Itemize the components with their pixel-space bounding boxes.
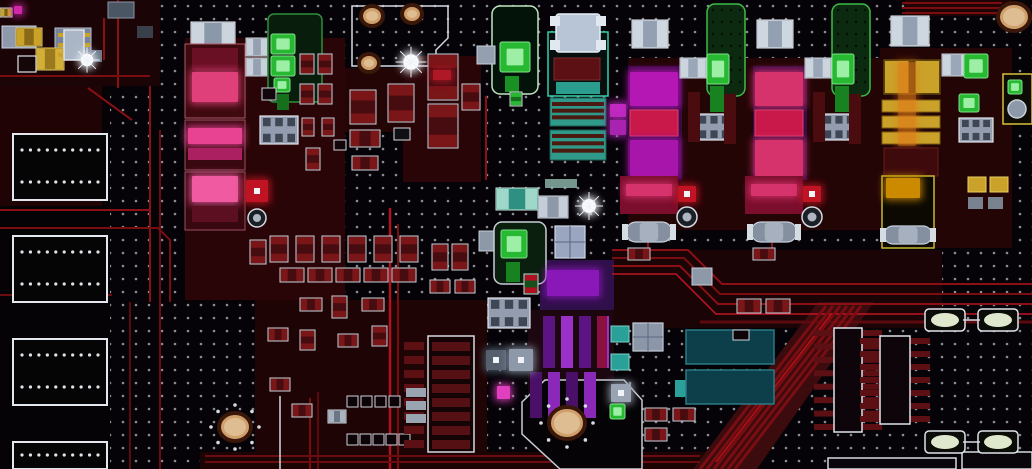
chip-resistor[interactable] — [377, 299, 383, 310]
connector-footprint-2[interactable] — [29, 250, 32, 253]
chip-gold[interactable] — [17, 29, 24, 45]
test-via[interactable] — [253, 214, 261, 222]
ic-sot23-6[interactable] — [275, 118, 283, 126]
ic-tssop-b[interactable] — [860, 338, 880, 344]
ic-sot23-6[interactable] — [835, 116, 842, 124]
chip-resistor[interactable] — [283, 379, 289, 390]
pad-teal-striped[interactable] — [552, 102, 604, 106]
connector-footprint-1[interactable] — [96, 180, 99, 183]
fiducial-copper[interactable] — [584, 438, 588, 442]
ic-tssop-a[interactable] — [834, 328, 862, 432]
test-point[interactable] — [931, 313, 959, 327]
connector-footprint-2[interactable] — [29, 282, 32, 285]
pad-maroon[interactable] — [554, 58, 600, 80]
chip-green-red[interactable] — [525, 287, 537, 293]
pad-red-led[interactable] — [684, 191, 690, 197]
chip-capacitor[interactable] — [370, 157, 377, 169]
connector-footprint-1[interactable] — [80, 180, 83, 183]
pcb-svg[interactable] — [0, 0, 1032, 469]
connector-footprint-1[interactable] — [46, 148, 49, 151]
chip-resistor[interactable] — [301, 67, 313, 73]
chip-resistor[interactable] — [303, 119, 313, 124]
chip-capacitor[interactable] — [429, 135, 457, 147]
led-green[interactable] — [278, 81, 287, 89]
test-point[interactable] — [984, 313, 1012, 327]
chip-resistor[interactable] — [301, 55, 313, 61]
chip-resistor[interactable] — [380, 269, 387, 281]
connector-footprint-4[interactable] — [37, 453, 40, 456]
chip-resistor[interactable] — [456, 281, 462, 292]
capacitor-gray[interactable] — [806, 59, 813, 77]
connector-footprint-2[interactable] — [20, 250, 23, 253]
chip-resistor[interactable] — [408, 269, 415, 281]
chip-capacitor[interactable] — [389, 110, 413, 121]
connector-footprint-3[interactable] — [54, 385, 57, 388]
connector-footprint-4[interactable] — [80, 453, 83, 456]
ic-tssop-a[interactable] — [862, 357, 882, 363]
pad-teal-striped[interactable] — [552, 141, 604, 145]
ic-tssop-a[interactable] — [814, 370, 834, 376]
pad-red[interactable] — [433, 70, 451, 80]
chip-resistor[interactable] — [301, 331, 314, 337]
led-green[interactable] — [507, 236, 522, 252]
ic-sot23-6[interactable] — [505, 300, 513, 309]
pad-teal[interactable] — [611, 354, 629, 370]
chip-resistor[interactable] — [333, 311, 346, 317]
ic-sot23-6[interactable] — [263, 118, 271, 126]
connector-footprint-2[interactable] — [54, 250, 57, 253]
ic-tssop-a[interactable] — [862, 330, 882, 336]
chip-resistor[interactable] — [301, 97, 313, 103]
ic-tssop-a[interactable] — [862, 397, 882, 403]
inductor-cylinder[interactable] — [880, 228, 886, 242]
capacitor-gray[interactable] — [261, 59, 267, 75]
ic-tssop-a[interactable] — [862, 384, 882, 390]
chip-resistor[interactable] — [352, 269, 359, 281]
chip-resistor[interactable] — [754, 249, 760, 259]
ic-pads-left[interactable] — [404, 342, 424, 350]
chip-capacitor[interactable] — [389, 85, 413, 96]
chip-capacitor[interactable] — [351, 131, 359, 146]
ic-pads-inner[interactable] — [432, 356, 470, 365]
ic-sot23-6[interactable] — [519, 317, 527, 326]
pad-maroon-bar[interactable] — [724, 94, 736, 144]
chip-resistor[interactable] — [324, 269, 331, 281]
connector-footprint-4[interactable] — [96, 453, 99, 456]
fiducial-copper[interactable] — [1003, 8, 1025, 26]
chip-resistor[interactable] — [296, 269, 303, 281]
capacitor-gray[interactable] — [943, 55, 951, 75]
ic-sot-footprint[interactable] — [58, 43, 64, 47]
mounting-hole-copper[interactable] — [407, 10, 417, 18]
connector-footprint-4[interactable] — [29, 453, 32, 456]
chip-resistor[interactable] — [319, 97, 331, 103]
chip-resistor[interactable] — [660, 409, 666, 420]
chip-gold[interactable] — [55, 49, 63, 69]
ic-pads-inner[interactable] — [432, 342, 470, 351]
chip-resistor[interactable] — [688, 409, 694, 420]
pad-dark[interactable] — [192, 206, 238, 222]
chip-capacitor[interactable] — [429, 55, 457, 68]
chip-resistor[interactable] — [319, 55, 331, 61]
inductor-cylinder[interactable] — [622, 224, 628, 240]
connector-footprint-1[interactable] — [96, 148, 99, 151]
capacitor-dark-teal[interactable] — [686, 330, 774, 364]
ic-tssop-a[interactable] — [862, 370, 882, 376]
ic-pads-inner[interactable] — [432, 412, 470, 421]
chip-resistor[interactable] — [301, 85, 313, 91]
chip-gray[interactable] — [329, 411, 334, 422]
led-green[interactable] — [969, 59, 982, 72]
ic-tssop-b[interactable] — [910, 377, 930, 383]
pad-red-led[interactable] — [809, 191, 815, 197]
ic-sot23-6[interactable] — [491, 317, 499, 326]
connector-footprint-4[interactable] — [54, 453, 57, 456]
connector-footprint-2[interactable] — [71, 250, 74, 253]
pad-gray[interactable] — [988, 197, 1003, 209]
pad-magenta-power[interactable] — [547, 270, 599, 296]
chip-resistor[interactable] — [767, 300, 774, 312]
test-point[interactable] — [931, 435, 959, 449]
crystal-pad[interactable] — [596, 40, 606, 50]
chip-gold[interactable] — [8, 9, 11, 16]
connector-footprint-4[interactable] — [88, 453, 91, 456]
connector-footprint-1[interactable] — [20, 180, 23, 183]
inductor-cylinder[interactable] — [670, 224, 676, 240]
capacitor-gray[interactable] — [758, 21, 768, 47]
capacitor-gray[interactable] — [698, 59, 705, 77]
led-green[interactable] — [276, 60, 289, 71]
pad-amber[interactable] — [886, 178, 920, 198]
ic-pads-gray[interactable] — [406, 401, 426, 410]
chip-resistor[interactable] — [281, 269, 288, 281]
chip-resistor[interactable] — [768, 249, 774, 259]
chip-resistor[interactable] — [365, 269, 372, 281]
chip-resistor[interactable] — [349, 237, 365, 244]
capacitor-gray[interactable] — [657, 21, 667, 47]
capacitor-dark-teal[interactable] — [686, 370, 774, 404]
chip-resistor[interactable] — [323, 130, 333, 135]
connector-footprint-2[interactable] — [63, 250, 66, 253]
ic-pads-inner[interactable] — [432, 440, 470, 449]
capacitor-teal[interactable] — [525, 189, 537, 209]
chip-resistor[interactable] — [646, 429, 652, 440]
capacitor-gray[interactable] — [917, 17, 928, 45]
connector-footprint-1[interactable] — [29, 180, 32, 183]
connector-footprint-1[interactable] — [46, 180, 49, 183]
capacitor-gray[interactable] — [247, 39, 253, 55]
connector-footprint-2[interactable] — [71, 282, 74, 285]
pcb-layout-canvas[interactable] — [0, 0, 1032, 469]
ic-sot-footprint[interactable] — [84, 33, 90, 37]
connector-footprint-3[interactable] — [54, 353, 57, 356]
ic-tssop-a[interactable] — [814, 384, 834, 390]
pad-teal-pale[interactable] — [545, 179, 577, 188]
connector-footprint-1[interactable] — [29, 148, 32, 151]
connector-footprint-3[interactable] — [13, 339, 107, 405]
connector-footprint-2[interactable] — [80, 250, 83, 253]
ic-tssop-a[interactable] — [814, 330, 834, 336]
pad-row-outline[interactable] — [389, 396, 400, 407]
led-green[interactable] — [963, 98, 974, 108]
pad-teal-striped[interactable] — [552, 149, 604, 153]
chip-resistor[interactable] — [307, 163, 319, 169]
connector-footprint-3[interactable] — [88, 353, 91, 356]
fiducial-copper[interactable] — [539, 421, 543, 425]
ic-tssop-b[interactable] — [860, 364, 880, 370]
ic-sot23-6[interactable] — [699, 130, 706, 138]
connector-footprint-3[interactable] — [37, 353, 40, 356]
part-with-window[interactable] — [618, 390, 624, 396]
pad-dark[interactable] — [192, 48, 238, 70]
button-cell-part[interactable] — [1008, 100, 1026, 118]
connector-footprint-3[interactable] — [37, 385, 40, 388]
pad-maroon-bar[interactable] — [813, 92, 825, 142]
smd-pad-gray[interactable] — [477, 46, 495, 64]
mounting-hole-copper[interactable] — [364, 59, 374, 67]
connector-footprint-2[interactable] — [96, 282, 99, 285]
connector-footprint-2[interactable] — [63, 282, 66, 285]
ic-sot23-6[interactable] — [983, 133, 990, 140]
pad-row-outline[interactable] — [375, 396, 386, 407]
connector-footprint-1[interactable] — [63, 148, 66, 151]
chip-resistor[interactable] — [375, 254, 391, 261]
led-green[interactable] — [1011, 83, 1019, 91]
pad-teal-striped[interactable] — [552, 109, 604, 113]
led-green[interactable] — [712, 61, 724, 78]
connector-footprint-2[interactable] — [37, 250, 40, 253]
chip-gold[interactable] — [1, 9, 4, 16]
fiducial-copper[interactable] — [250, 441, 254, 445]
inductor-cylinder[interactable] — [930, 228, 936, 242]
ic-sot-footprint[interactable] — [58, 53, 64, 57]
connector-footprint-4[interactable] — [71, 453, 74, 456]
pad-maroon-bar[interactable] — [688, 92, 700, 142]
ic-tssop-b[interactable] — [880, 336, 910, 424]
chip-resistor[interactable] — [319, 85, 331, 91]
capacitor-gray[interactable] — [247, 59, 253, 75]
chip-resistor[interactable] — [401, 237, 417, 244]
mounting-hole-copper[interactable] — [366, 11, 378, 21]
ic-pads-inner[interactable] — [432, 370, 470, 379]
chip-resistor[interactable] — [307, 149, 319, 155]
chip-resistor[interactable] — [337, 269, 344, 281]
crystal-pad[interactable] — [550, 40, 560, 50]
ic-pads-gray[interactable] — [406, 388, 426, 397]
pad-row-outline[interactable] — [361, 396, 372, 407]
fiducial-copper[interactable] — [565, 397, 569, 401]
connector-footprint-3[interactable] — [29, 353, 32, 356]
chip-capacitor[interactable] — [463, 102, 479, 109]
fiducial-copper[interactable] — [257, 425, 261, 429]
ic-tssop-a[interactable] — [862, 411, 882, 417]
chip-resistor[interactable] — [433, 245, 447, 252]
ic-tssop-b[interactable] — [860, 377, 880, 383]
connector-footprint-3[interactable] — [46, 353, 49, 356]
pad-gold[interactable] — [990, 177, 1008, 192]
fiducial-copper[interactable] — [591, 421, 595, 425]
pad-magenta[interactable] — [14, 6, 22, 14]
chip-resistor[interactable] — [251, 241, 265, 248]
pad-teal-striped[interactable] — [552, 134, 604, 138]
ic-tssop-a[interactable] — [814, 397, 834, 403]
fiducial-copper[interactable] — [554, 412, 580, 434]
pad-magenta[interactable] — [610, 104, 626, 117]
connector-footprint-3[interactable] — [88, 385, 91, 388]
chip-green[interactable] — [511, 93, 521, 97]
capacitor-gray[interactable] — [559, 197, 567, 217]
chip-resistor[interactable] — [301, 343, 314, 349]
chip-resistor[interactable] — [303, 130, 313, 135]
chip-resistor[interactable] — [375, 237, 391, 244]
chip-green[interactable] — [511, 101, 521, 105]
chip-resistor[interactable] — [453, 262, 467, 269]
ic-sot23-6[interactable] — [263, 134, 271, 142]
pad-teal[interactable] — [556, 82, 600, 94]
chip-resistor[interactable] — [309, 269, 316, 281]
capacitor-gray[interactable] — [782, 21, 792, 47]
chip-resistor[interactable] — [646, 409, 652, 420]
chip-resistor[interactable] — [293, 405, 299, 416]
chip-resistor[interactable] — [339, 335, 345, 346]
ic-sot23-6[interactable] — [983, 120, 990, 127]
ic-tssop-b[interactable] — [910, 364, 930, 370]
connector-footprint-2[interactable] — [13, 236, 107, 302]
connector-footprint-3[interactable] — [71, 353, 74, 356]
chip-resistor[interactable] — [351, 335, 357, 346]
connector-footprint-3[interactable] — [46, 385, 49, 388]
ic-pads-left[interactable] — [404, 370, 424, 378]
chip-capacitor[interactable] — [429, 86, 457, 99]
connector-footprint-2[interactable] — [88, 250, 91, 253]
ic-sot-footprint[interactable] — [58, 33, 64, 37]
chip-resistor[interactable] — [323, 237, 339, 244]
chip-resistor[interactable] — [297, 254, 313, 261]
connector-footprint-4[interactable] — [46, 453, 49, 456]
chip-resistor[interactable] — [629, 249, 635, 259]
chip-resistor[interactable] — [349, 254, 365, 261]
chip-capacitor[interactable] — [351, 113, 375, 123]
ic-tssop-a[interactable] — [814, 357, 834, 363]
ic-sot23-6[interactable] — [962, 120, 969, 127]
chip-resistor[interactable] — [431, 281, 437, 292]
inductor-cylinder[interactable] — [898, 227, 917, 243]
chip-resistor[interactable] — [323, 119, 333, 124]
chip-capacitor[interactable] — [353, 157, 360, 169]
capacitor-teal[interactable] — [497, 189, 509, 209]
chip-green-red[interactable] — [525, 275, 537, 281]
ic-tssop-b[interactable] — [910, 403, 930, 409]
connector-footprint-1[interactable] — [71, 148, 74, 151]
chip-resistor[interactable] — [643, 249, 649, 259]
chip-capacitor[interactable] — [429, 105, 457, 117]
ic-sot23-6[interactable] — [835, 130, 842, 138]
ic-sot23-6[interactable] — [710, 130, 717, 138]
connector-footprint-3[interactable] — [63, 385, 66, 388]
connector-footprint-3[interactable] — [96, 385, 99, 388]
chip-resistor[interactable] — [297, 237, 313, 244]
chip-outline[interactable] — [18, 56, 36, 72]
pad-row-outline[interactable] — [386, 434, 397, 445]
chip-gold[interactable] — [37, 49, 45, 69]
chip-resistor[interactable] — [373, 327, 386, 333]
chip-resistor[interactable] — [660, 429, 666, 440]
connector-footprint-1[interactable] — [20, 148, 23, 151]
chip-resistor[interactable] — [319, 67, 331, 73]
chip-resistor[interactable] — [401, 254, 417, 261]
ic-sot23-6[interactable] — [491, 300, 499, 309]
connector-footprint-4[interactable] — [13, 442, 107, 469]
chip-capacitor[interactable] — [463, 85, 479, 92]
connector-footprint-2[interactable] — [80, 282, 83, 285]
chip-resistor[interactable] — [271, 237, 287, 244]
chip-resistor[interactable] — [782, 300, 789, 312]
ic-tssop-a[interactable] — [814, 424, 834, 430]
ic-sot23-6[interactable] — [275, 134, 283, 142]
connector-footprint-1[interactable] — [37, 148, 40, 151]
ic-sot23-6[interactable] — [973, 120, 980, 127]
fiducial-copper[interactable] — [250, 410, 254, 414]
pad-teal[interactable] — [611, 326, 629, 342]
connector-footprint-1[interactable] — [63, 180, 66, 183]
pad-maroon[interactable] — [884, 148, 938, 176]
connector-footprint-1[interactable] — [37, 180, 40, 183]
crystal-pad[interactable] — [550, 16, 560, 26]
ic-sot-footprint[interactable] — [84, 43, 90, 47]
ic-tssop-a[interactable] — [814, 411, 834, 417]
fiducial-copper[interactable] — [584, 404, 588, 408]
fiducial-copper[interactable] — [233, 447, 237, 451]
smd-pad-gray[interactable] — [108, 2, 134, 18]
ic-sot23-6[interactable] — [287, 134, 295, 142]
pad-crimson[interactable] — [755, 110, 803, 136]
chip-resistor[interactable] — [271, 379, 277, 390]
connector-footprint-3[interactable] — [63, 353, 66, 356]
pad-maroon-bar[interactable] — [849, 94, 861, 144]
fiducial-copper[interactable] — [547, 404, 551, 408]
capacitor-gray[interactable] — [681, 59, 688, 77]
pad-pink-glow[interactable] — [626, 184, 672, 196]
fiducial-copper[interactable] — [547, 438, 551, 442]
connector-footprint-2[interactable] — [46, 250, 49, 253]
connector-footprint-2[interactable] — [54, 282, 57, 285]
chip-resistor[interactable] — [373, 339, 386, 345]
inductor-cylinder[interactable] — [747, 224, 753, 240]
pad-red-led[interactable] — [254, 188, 260, 194]
chip-resistor[interactable] — [433, 262, 447, 269]
connector-footprint-4[interactable] — [20, 453, 23, 456]
connector-footprint-3[interactable] — [20, 353, 23, 356]
test-point[interactable] — [984, 435, 1012, 449]
ic-pads-inner[interactable] — [432, 384, 470, 393]
connector-footprint-1[interactable] — [54, 180, 57, 183]
chip-resistor[interactable] — [393, 269, 400, 281]
connector-footprint-3[interactable] — [80, 353, 83, 356]
connector-footprint-2[interactable] — [96, 250, 99, 253]
ic-sot23-6[interactable] — [519, 300, 527, 309]
ic-sot23-6[interactable] — [962, 133, 969, 140]
ic-tssop-b[interactable] — [910, 338, 930, 344]
pad-row-outline[interactable] — [347, 434, 358, 445]
ic-sot23-6[interactable] — [287, 118, 295, 126]
chip-resistor[interactable] — [738, 300, 745, 312]
led-green[interactable] — [507, 49, 524, 66]
pad-crimson-power[interactable] — [755, 140, 803, 176]
connector-footprint-1[interactable] — [54, 148, 57, 151]
chip-resistor[interactable] — [753, 300, 760, 312]
chip-resistor[interactable] — [271, 254, 287, 261]
ic-sot23-6[interactable] — [710, 116, 717, 124]
